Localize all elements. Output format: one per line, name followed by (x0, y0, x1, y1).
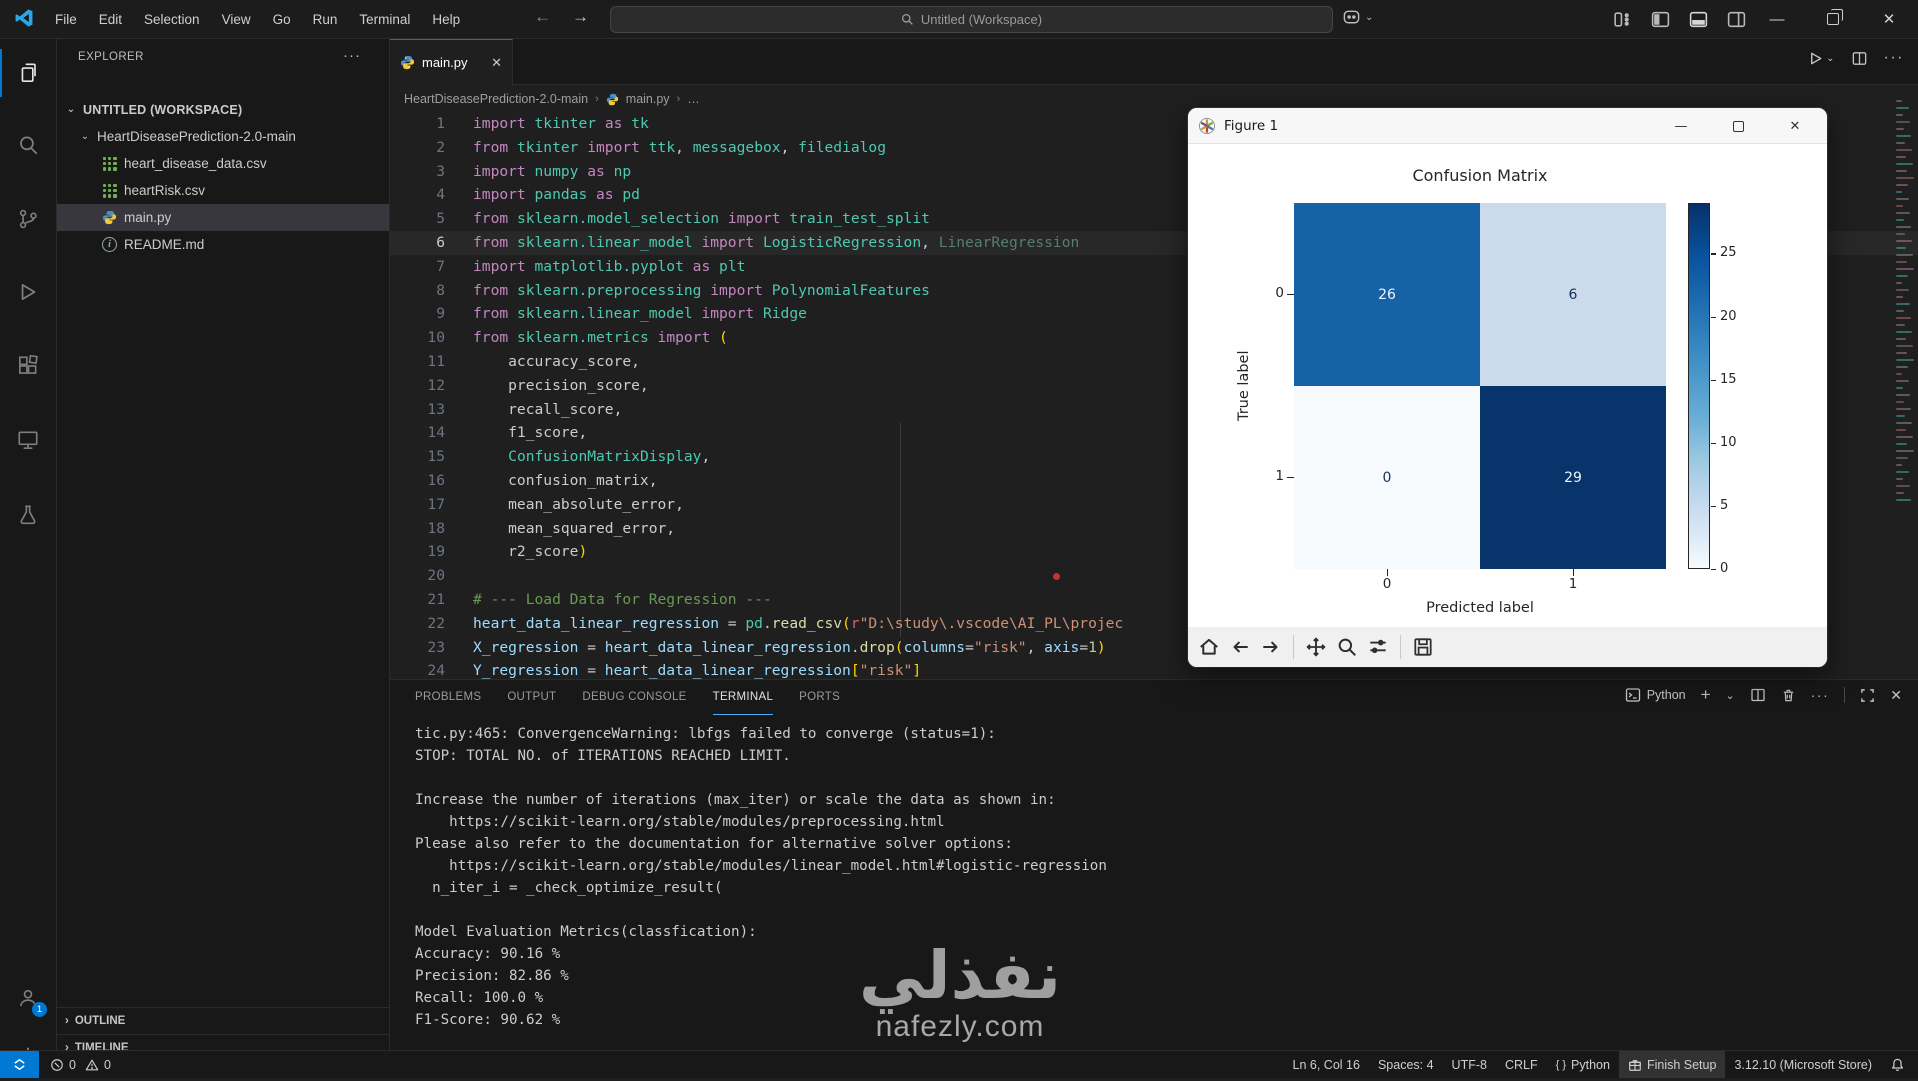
file-item-heart-disease-data-csv[interactable]: heart_disease_data.csv (57, 150, 389, 177)
colorbar-tick-label: 15 (1720, 372, 1737, 387)
line-number: 1 (390, 112, 445, 136)
line-content: recall_score, (473, 398, 622, 422)
source-control-icon[interactable] (0, 195, 56, 243)
folder-item[interactable]: ⌄ HeartDiseasePrediction-2.0-main (57, 123, 389, 150)
terminal-line: n_iter_i = _check_optimize_result( (415, 877, 723, 899)
minimap[interactable] (1894, 100, 1916, 570)
bottom-panel: PROBLEMSOUTPUTDEBUG CONSOLETERMINALPORTS… (390, 679, 1918, 1050)
file-item-heartrisk-csv[interactable]: heartRisk.csv (57, 177, 389, 204)
figure-maximize-button[interactable] (1714, 108, 1762, 144)
figure-close-button[interactable]: ✕ (1771, 108, 1819, 144)
file-label: README.md (124, 237, 204, 252)
line-number: 23 (390, 636, 445, 660)
matrix-cell-0-0: 26 (1294, 203, 1480, 386)
breadcrumb-file[interactable]: main.py (626, 92, 670, 106)
remote-indicator[interactable] (0, 1051, 39, 1078)
run-debug-icon[interactable] (0, 268, 56, 316)
forward-icon[interactable] (1260, 636, 1282, 658)
testing-icon[interactable] (0, 491, 56, 539)
language-mode[interactable]: { } Python (1547, 1051, 1619, 1078)
file-label: main.py (124, 210, 171, 225)
file-item-main-py[interactable]: main.py (57, 204, 389, 231)
menu-terminal[interactable]: Terminal (348, 7, 421, 33)
chevron-right-icon: › (65, 1015, 69, 1027)
breadcrumb-separator: › (677, 93, 681, 105)
maximize-panel-icon[interactable] (1860, 688, 1875, 703)
outline-label: OUTLINE (75, 1015, 125, 1027)
line-number: 11 (390, 350, 445, 374)
save-icon[interactable] (1412, 636, 1434, 658)
back-icon[interactable] (1229, 636, 1251, 658)
colorbar-tick-label: 10 (1720, 435, 1737, 450)
finish-setup-button[interactable]: Finish Setup (1619, 1051, 1725, 1078)
colorbar-tick-label: 25 (1720, 245, 1737, 260)
line-content: X_regression = heart_data_linear_regress… (473, 636, 1106, 660)
python-file-icon (606, 93, 619, 106)
python-interpreter[interactable]: 3.12.10 (Microsoft Store) (1725, 1051, 1881, 1078)
cursor-position[interactable]: Ln 6, Col 16 (1284, 1051, 1369, 1078)
terminal-instance[interactable]: Python (1625, 687, 1686, 703)
terminal-output[interactable]: tic.py:465: ConvergenceWarning: lbfgs fa… (415, 723, 1895, 1043)
breadcrumb-folder[interactable]: HeartDiseasePrediction-2.0-main (404, 92, 588, 106)
menu-file[interactable]: File (44, 7, 88, 33)
line-content: precision_score, (473, 374, 649, 398)
line-number: 17 (390, 493, 445, 517)
pan-icon[interactable] (1305, 636, 1327, 658)
line-content: heart_data_linear_regression = pd.read_c… (473, 612, 1123, 636)
chevron-down-icon: ⌄ (65, 104, 77, 115)
line-number: 6 (390, 231, 445, 255)
new-terminal-icon[interactable]: + (1701, 685, 1711, 705)
panel-tab-problems[interactable]: PROBLEMS (415, 680, 481, 715)
encoding[interactable]: UTF-8 (1443, 1051, 1496, 1078)
menu-selection[interactable]: Selection (133, 7, 211, 33)
line-content: confusion_matrix, (473, 469, 658, 493)
line-content: mean_absolute_error, (473, 493, 684, 517)
panel-tab-debug-console[interactable]: DEBUG CONSOLE (582, 680, 686, 715)
terminal-line: https://scikit-learn.org/stable/modules/… (415, 811, 945, 833)
panel-tab-output[interactable]: OUTPUT (507, 680, 556, 715)
line-content: from sklearn.linear_model import Logisti… (473, 231, 1079, 255)
line-number: 18 (390, 517, 445, 541)
file-label: heart_disease_data.csv (124, 156, 267, 171)
ytick-1: 1 (1254, 468, 1284, 484)
menu-run[interactable]: Run (302, 7, 349, 33)
window-minimize-button[interactable]: — (1752, 0, 1802, 38)
terminal-line: Increase the number of iterations (max_i… (415, 789, 1056, 811)
search-view-icon[interactable] (0, 121, 56, 169)
subplot-settings-icon[interactable] (1367, 636, 1389, 658)
colorbar-tickmark (1711, 317, 1716, 318)
window-restore-button[interactable] (1808, 0, 1858, 38)
colorbar-tickmark (1711, 443, 1716, 444)
panel-tabs: PROBLEMSOUTPUTDEBUG CONSOLETERMINALPORTS (415, 680, 840, 715)
matrix-cell-1-1: 29 (1480, 386, 1666, 569)
chevron-down-icon: ⌄ (79, 131, 91, 142)
line-number: 22 (390, 612, 445, 636)
line-number: 14 (390, 421, 445, 445)
line-number: 4 (390, 183, 445, 207)
command-center-search[interactable]: Untitled (Workspace) (610, 6, 1333, 33)
tab-main-py[interactable]: main.py ✕ (390, 39, 513, 85)
line-number: 19 (390, 540, 445, 564)
chart-title: Confusion Matrix (1294, 166, 1666, 185)
ytick-0: 0 (1254, 285, 1284, 301)
customize-layout-icon[interactable] (1612, 9, 1633, 30)
explorer-sidebar: EXPLORER ··· ⌄ UNTITLED (WORKSPACE) ⌄ He… (57, 39, 390, 1050)
line-content: from sklearn.model_selection import trai… (473, 207, 930, 231)
notifications-bell-icon[interactable] (1881, 1051, 1914, 1078)
kill-terminal-icon[interactable] (1781, 688, 1796, 703)
line-number: 5 (390, 207, 445, 231)
terminal-line: F1-Score: 90.62 % (415, 1009, 560, 1031)
figure-toolbar (1188, 627, 1827, 667)
accounts-icon[interactable]: 1 (0, 974, 56, 1022)
line-content: import matplotlib.pyplot as plt (473, 255, 745, 279)
line-number: 16 (390, 469, 445, 493)
red-dot (1053, 573, 1060, 580)
line-content: accuracy_score, (473, 350, 640, 374)
toggle-panel-icon[interactable] (1688, 9, 1709, 30)
braces-icon: { } (1556, 1059, 1566, 1071)
breadcrumb-separator: › (595, 93, 599, 105)
close-panel-icon[interactable]: ✕ (1890, 687, 1902, 704)
terminal-line: Accuracy: 90.16 % (415, 943, 560, 965)
toggle-sidebar-icon[interactable] (1650, 9, 1671, 30)
terminal-shell-label: Python (1647, 688, 1686, 702)
line-content: Y_regression = heart_data_linear_regress… (473, 659, 921, 679)
xtick-1: 1 (1553, 576, 1593, 592)
figure-minimize-button[interactable]: — (1657, 108, 1705, 144)
eol-sequence[interactable]: CRLF (1496, 1051, 1547, 1078)
line-number: 10 (390, 326, 445, 350)
warning-count: 0 (104, 1058, 111, 1072)
line-content: from sklearn.metrics import ( (473, 326, 728, 350)
window-close-button[interactable]: ✕ (1864, 0, 1914, 38)
line-number: 15 (390, 445, 445, 469)
line-content: import pandas as pd (473, 183, 640, 207)
terminal-line: tic.py:465: ConvergenceWarning: lbfgs fa… (415, 723, 996, 745)
vscode-logo-icon (14, 8, 34, 28)
xtick-0: 0 (1367, 576, 1407, 592)
outline-section[interactable]: › OUTLINE (57, 1007, 389, 1033)
status-bar: 0 0 Ln 6, Col 16 Spaces: 4 UTF-8 CRLF { … (0, 1050, 1918, 1078)
colorbar-tickmark (1711, 569, 1716, 570)
terminal-line: STOP: TOTAL NO. of ITERATIONS REACHED LI… (415, 745, 791, 767)
terminal-line: Precision: 82.86 % (415, 965, 569, 987)
split-editor-icon[interactable] (1851, 50, 1868, 67)
line-number: 2 (390, 136, 445, 160)
zoom-icon[interactable] (1336, 636, 1358, 658)
error-count: 0 (69, 1058, 76, 1072)
menu-bar: FileEditSelectionViewGoRunTerminalHelp (44, 0, 471, 39)
menu-edit[interactable]: Edit (88, 7, 133, 33)
editor-more-actions-icon[interactable]: ··· (1884, 49, 1904, 67)
line-content: mean_squared_error, (473, 517, 675, 541)
terminal-line: Recall: 100.0 % (415, 987, 543, 1009)
line-content: import numpy as np (473, 160, 631, 184)
colorbar-tick-label: 5 (1720, 498, 1728, 513)
menu-go[interactable]: Go (262, 7, 302, 33)
python-file-icon (400, 55, 415, 70)
y-axis-label: True label (1235, 203, 1253, 569)
x-axis-label: Predicted label (1294, 600, 1666, 616)
line-number: 9 (390, 302, 445, 326)
file-label: heartRisk.csv (124, 183, 205, 198)
remote-explorer-icon[interactable] (0, 416, 56, 464)
breadcrumb[interactable]: HeartDiseasePrediction-2.0-main › main.p… (404, 87, 700, 111)
line-number: 21 (390, 588, 445, 612)
panel-tab-ports[interactable]: PORTS (799, 680, 840, 715)
search-icon (901, 13, 914, 26)
workspace-label: UNTITLED (WORKSPACE) (83, 103, 242, 117)
line-number: 13 (390, 398, 445, 422)
tab-close-icon[interactable]: ✕ (491, 55, 502, 71)
figure-title-bar[interactable]: Figure 1 — ✕ (1188, 108, 1827, 144)
line-content: # --- Load Data for Regression --- (473, 588, 772, 612)
explorer-title: EXPLORER (57, 51, 144, 63)
line-content: ConfusionMatrixDisplay, (473, 445, 710, 469)
line-number: 24 (390, 659, 445, 679)
colorbar (1688, 203, 1710, 569)
extensions-icon[interactable] (0, 342, 56, 390)
home-icon[interactable] (1198, 636, 1220, 658)
panel-more-actions-icon[interactable]: ··· (1811, 687, 1830, 703)
explorer-icon[interactable] (0, 49, 56, 97)
figure-window-title: Figure 1 (1224, 118, 1278, 134)
line-content: from tkinter import ttk, messagebox, fil… (473, 136, 886, 160)
copilot-button[interactable]: ⌄ (1342, 8, 1373, 27)
nav-forward-icon[interactable]: → (572, 7, 589, 27)
line-content: f1_score, (473, 421, 587, 445)
toggle-secondary-sidebar-icon[interactable] (1726, 9, 1747, 30)
line-content: import tkinter as tk (473, 112, 649, 136)
problems-summary[interactable]: 0 0 (50, 1051, 111, 1078)
matplotlib-logo-icon (1198, 117, 1216, 135)
line-number: 7 (390, 255, 445, 279)
activity-bar: 1 1 (0, 39, 57, 1050)
breadcrumb-more[interactable]: … (687, 92, 700, 106)
line-content: r2_score) (473, 540, 587, 564)
colorbar-tickmark (1711, 253, 1716, 254)
run-python-file-icon[interactable]: ⌄ (1807, 50, 1834, 67)
terminal-line: Model Evaluation Metrics(classfication): (415, 921, 757, 943)
split-terminal-icon[interactable] (1750, 687, 1766, 703)
confusion-matrix: 26 6 0 29 (1294, 203, 1666, 569)
nav-back-icon[interactable]: ← (534, 7, 551, 27)
figure-canvas: Confusion Matrix 26 6 0 29 0 1 0 1 True … (1188, 144, 1827, 627)
accounts-badge: 1 (32, 1002, 47, 1017)
line-number: 8 (390, 279, 445, 303)
line-number: 20 (390, 564, 445, 588)
search-placeholder: Untitled (Workspace) (921, 12, 1042, 27)
file-item-readme-md[interactable]: iREADME.md (57, 231, 389, 258)
terminal-line: Please also refer to the documentation f… (415, 833, 1013, 855)
title-bar: FileEditSelectionViewGoRunTerminalHelp ←… (0, 0, 1918, 39)
colorbar-tick-label: 0 (1720, 561, 1728, 576)
menu-view[interactable]: View (211, 7, 262, 33)
chevron-down-icon: ⌄ (1365, 12, 1373, 23)
indentation[interactable]: Spaces: 4 (1369, 1051, 1443, 1078)
terminal-dropdown-icon[interactable]: ⌄ (1726, 689, 1735, 702)
line-content: from sklearn.preprocessing import Polyno… (473, 279, 930, 303)
terminal-line: https://scikit-learn.org/stable/modules/… (415, 855, 1107, 877)
matrix-cell-1-0: 0 (1294, 386, 1480, 569)
matplotlib-figure-window[interactable]: Figure 1 — ✕ Confusion Matrix 26 6 0 29 … (1188, 108, 1827, 667)
explorer-more-actions-icon[interactable]: ··· (343, 47, 361, 64)
colorbar-tickmark (1711, 380, 1716, 381)
line-number: 12 (390, 374, 445, 398)
panel-tab-terminal[interactable]: TERMINAL (713, 680, 774, 715)
colorbar-tick-label: 20 (1720, 309, 1737, 324)
tab-label: main.py (422, 55, 468, 70)
folder-label: HeartDiseasePrediction-2.0-main (97, 129, 296, 144)
line-number: 3 (390, 160, 445, 184)
matrix-cell-0-1: 6 (1480, 203, 1666, 386)
menu-help[interactable]: Help (421, 7, 471, 33)
colorbar-tickmark (1711, 506, 1716, 507)
tab-bar: main.py ✕ ⌄ ··· (390, 39, 1918, 85)
workspace-root-item[interactable]: ⌄ UNTITLED (WORKSPACE) (57, 96, 389, 123)
line-content: from sklearn.linear_model import Ridge (473, 302, 807, 326)
